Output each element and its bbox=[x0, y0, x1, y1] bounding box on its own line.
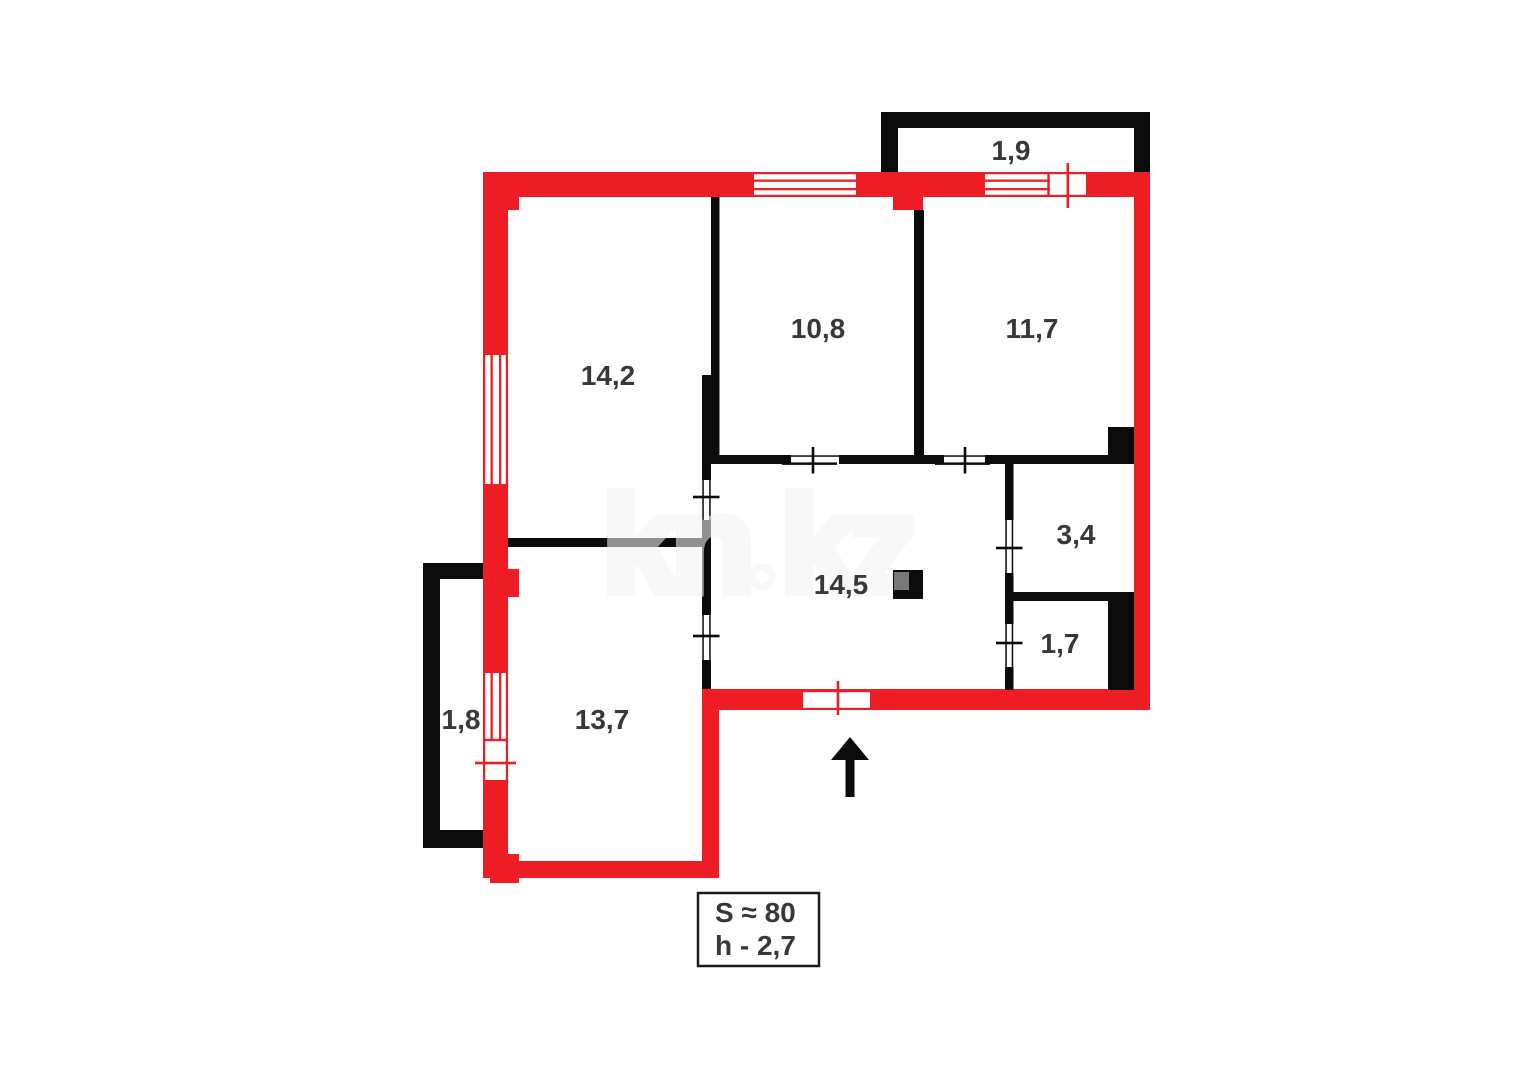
svg-text:S ≈ 80: S ≈ 80 bbox=[715, 897, 796, 928]
svg-text:14,2: 14,2 bbox=[581, 360, 636, 391]
svg-text:14,5: 14,5 bbox=[814, 569, 869, 600]
svg-text:1,7: 1,7 bbox=[1041, 628, 1080, 659]
svg-text:13,7: 13,7 bbox=[575, 704, 630, 735]
svg-text:10,8: 10,8 bbox=[791, 313, 846, 344]
svg-text:11,7: 11,7 bbox=[1006, 313, 1059, 344]
svg-text:1,8: 1,8 bbox=[442, 704, 481, 735]
svg-text:1,9: 1,9 bbox=[992, 135, 1031, 166]
svg-text:3,4: 3,4 bbox=[1057, 519, 1096, 550]
svg-text:h - 2,7: h - 2,7 bbox=[715, 930, 796, 961]
